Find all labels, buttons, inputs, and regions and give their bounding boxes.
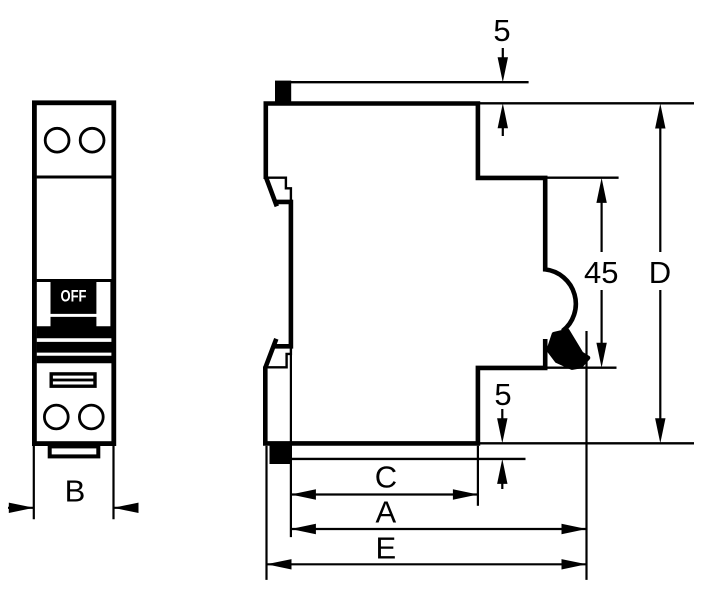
svg-text:E: E [376, 531, 397, 566]
svg-text:D: D [649, 255, 671, 290]
svg-text:C: C [375, 460, 397, 495]
svg-text:A: A [376, 495, 397, 530]
svg-text:5: 5 [494, 377, 511, 412]
svg-text:OFF: OFF [61, 287, 87, 306]
svg-text:5: 5 [493, 13, 510, 48]
svg-text:45: 45 [584, 255, 618, 290]
svg-text:B: B [65, 474, 86, 509]
